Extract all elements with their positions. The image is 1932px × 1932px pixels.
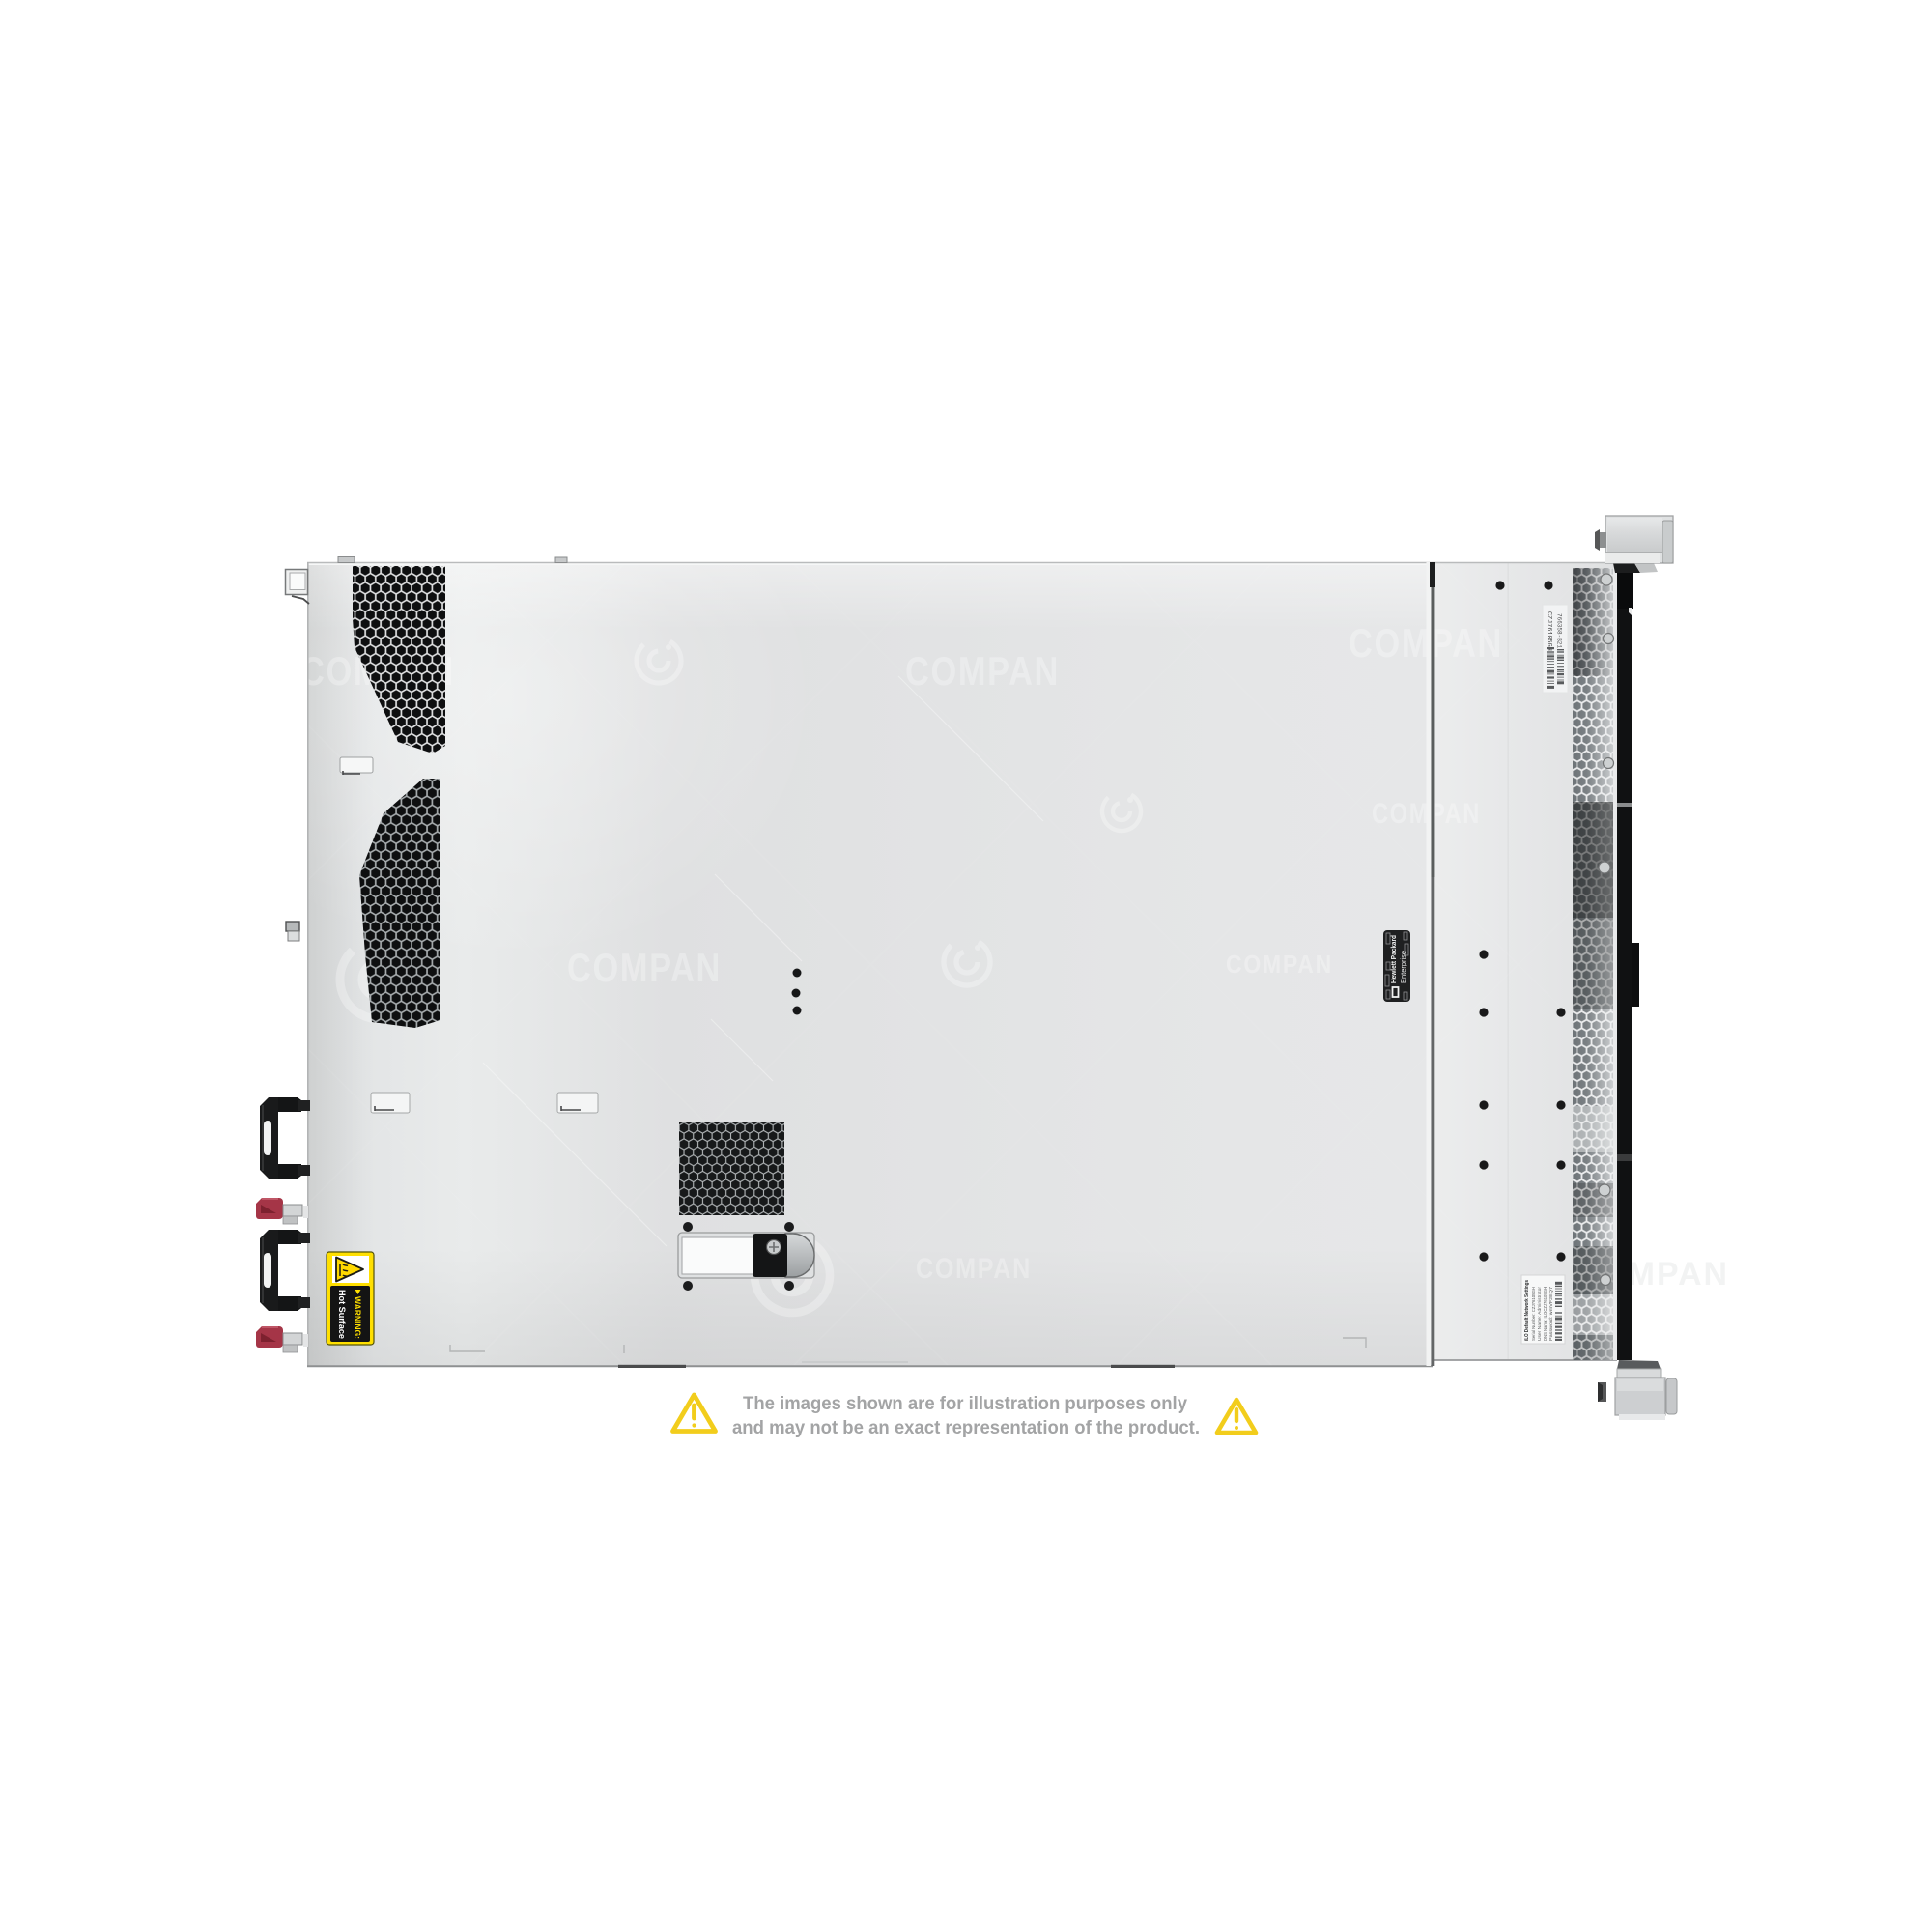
svg-text:Hot Surface: Hot Surface [336,1290,347,1339]
svg-text:User Name: Administrator: User Name: Administrator [1537,1287,1542,1341]
svg-text:COMPAN: COMPAN [1349,620,1503,666]
svg-text:CZJ76105GH: CZJ76105GH [1546,611,1553,651]
svg-text:COMPAN: COMPAN [916,1253,1032,1285]
svg-text:iLO Default Network Settings: iLO Default Network Settings [1524,1280,1530,1341]
svg-text:766358-B21: 766358-B21 [1556,613,1563,648]
svg-text:Hewlett Packard: Hewlett Packard [1389,935,1398,983]
svg-text:Password: wmVF2EQ7: Password: wmVF2EQ7 [1548,1286,1553,1341]
svg-text:Enterprise: Enterprise [1399,951,1407,983]
svg-text:The images shown are for illus: The images shown are for illustration pu… [743,1393,1187,1414]
svg-text:WARNING:: WARNING: [352,1296,362,1339]
svg-text:and may not be an exact repres: and may not be an exact representation o… [732,1417,1200,1438]
svg-text:DNS Name: ILOCZJ76105GH: DNS Name: ILOCZJ76105GH [1543,1287,1548,1341]
svg-text:COMPAN: COMPAN [567,945,722,990]
svg-text:COMPAN: COMPAN [905,648,1060,694]
svg-text:Serial Number: CZJ76105GH: Serial Number: CZJ76105GH [1531,1287,1536,1341]
svg-text:COMPAN: COMPAN [1226,950,1333,979]
